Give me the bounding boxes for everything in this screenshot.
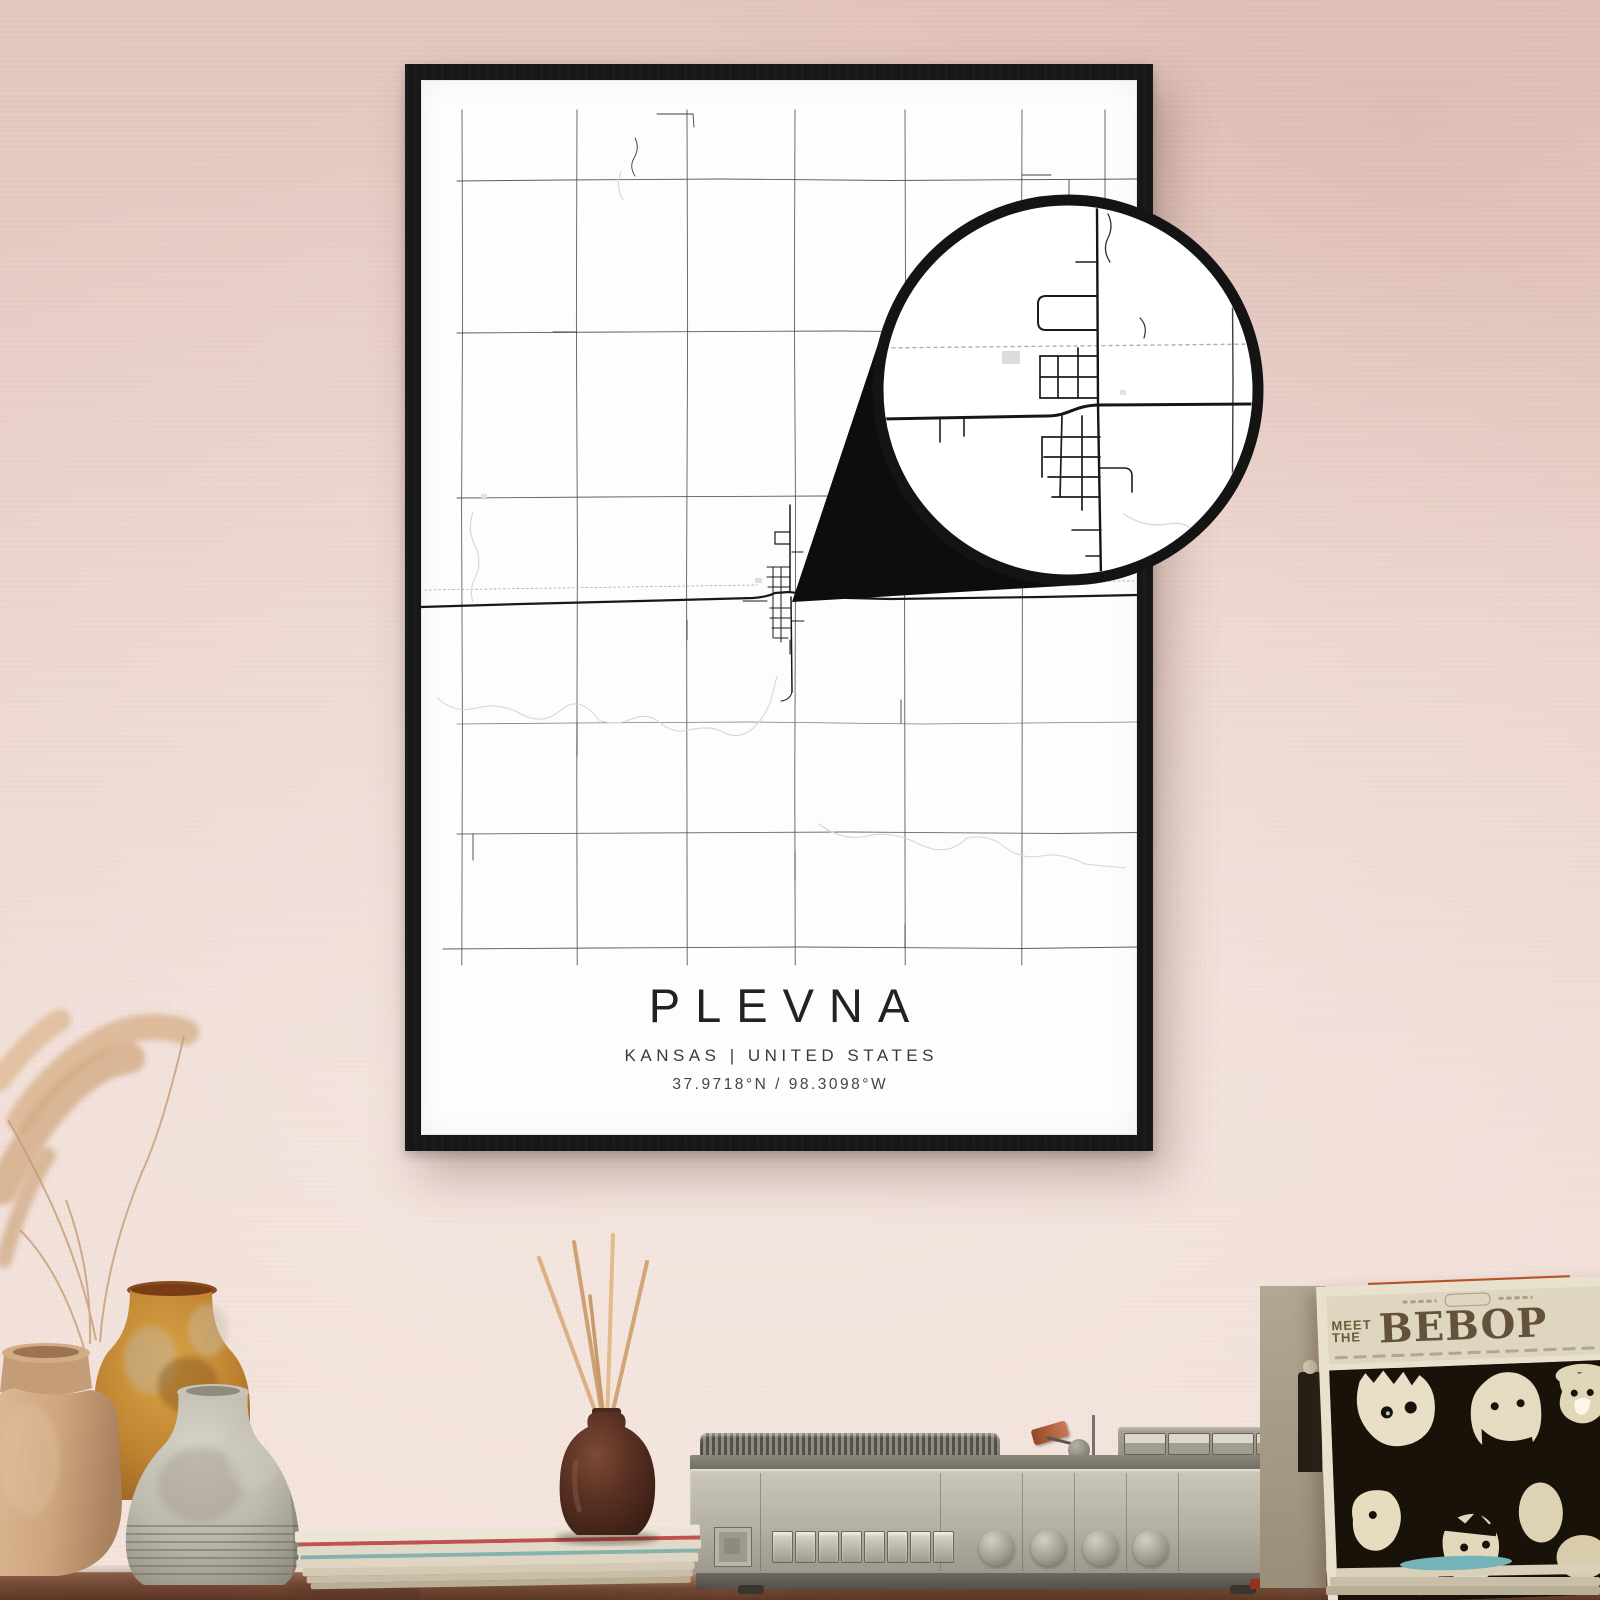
preset-button (910, 1531, 931, 1563)
sleeve-header: MEET THE BEBOP (1326, 1286, 1600, 1365)
red-foot-cap (1250, 1579, 1260, 1589)
module-key (1168, 1433, 1210, 1455)
flat-record (1330, 1577, 1600, 1586)
album-title-row: MEET THE BEBOP (1331, 1306, 1548, 1348)
pampas-grass (0, 1020, 186, 1260)
panel-seam (1126, 1473, 1127, 1571)
preset-button (818, 1531, 839, 1563)
panel-seam (1022, 1473, 1023, 1571)
player-base (696, 1573, 1314, 1589)
preset-button (772, 1531, 793, 1563)
suited-figure-silhouette (1298, 1372, 1322, 1472)
preset-button (795, 1531, 816, 1563)
volume-knob (979, 1530, 1015, 1566)
figure-head (1303, 1360, 1317, 1374)
preset-button (933, 1531, 954, 1563)
record-sleeve: MEET THE BEBOP (1316, 1275, 1600, 1600)
preset-button (841, 1531, 862, 1563)
panel-seam (1178, 1473, 1179, 1571)
header-rule (1498, 1295, 1532, 1299)
the-label: THE (1332, 1331, 1373, 1345)
panel-seam (1074, 1473, 1075, 1571)
preset-button (864, 1531, 885, 1563)
still-life-group (0, 940, 760, 1600)
album-title: BEBOP (1378, 1306, 1548, 1346)
preset-button (887, 1531, 908, 1563)
tonearm-rest-rod (1092, 1415, 1095, 1455)
flat-record (1326, 1586, 1600, 1595)
incense-sticks (539, 1235, 647, 1430)
album-title-prefix: MEET THE (1331, 1313, 1372, 1345)
record-player (690, 1415, 1320, 1595)
panel-seam (760, 1473, 761, 1571)
module-key (1212, 1433, 1254, 1455)
tone-knob (1031, 1530, 1067, 1566)
room-scene: PLEVNA KANSAS | UNITED STATES 37.9718°N … (0, 0, 1600, 1600)
balance-knob (1083, 1530, 1119, 1566)
header-rule (1403, 1299, 1437, 1303)
reed-diffuser (539, 1235, 659, 1545)
tuning-knob (1133, 1530, 1169, 1566)
module-key (1124, 1433, 1166, 1455)
